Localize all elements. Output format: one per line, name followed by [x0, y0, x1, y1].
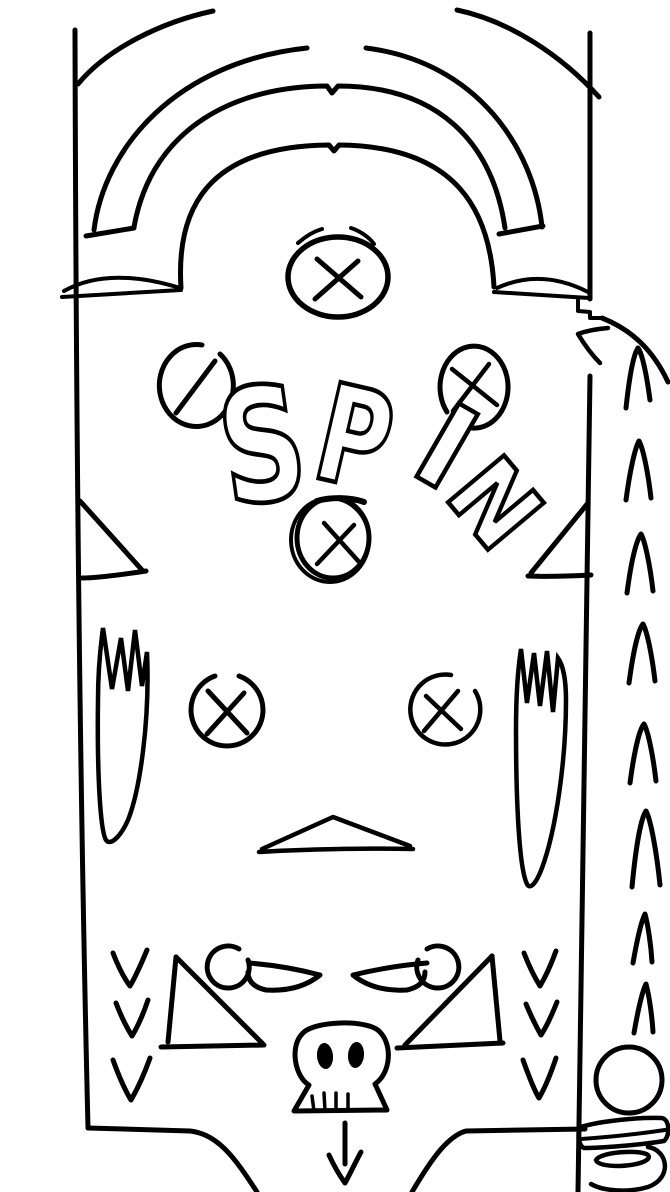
up-chevron-icon — [632, 811, 660, 887]
left-drain-wall — [88, 1128, 257, 1192]
bumper-x-icon — [207, 691, 247, 734]
up-chevron-icon — [629, 624, 655, 683]
right-wall-lower — [578, 376, 590, 1192]
plunger-handle-top — [596, 1152, 649, 1166]
right-slingshot — [397, 956, 503, 1048]
triangle-hypotenuse — [80, 501, 142, 570]
sketch-svg: S P I N — [0, 0, 670, 1192]
top-x-bumper — [288, 228, 388, 317]
down-chevron-icon — [113, 1058, 150, 1100]
bumper-x-icon — [424, 691, 461, 731]
left-lane-guide-base — [62, 290, 181, 297]
slingshot-side — [492, 956, 500, 1041]
outer-arc-left — [78, 11, 213, 84]
left-claw — [98, 628, 148, 842]
pinball-sketch-canvas: S P I N — [0, 0, 670, 1192]
up-chevron-icon — [634, 984, 653, 1033]
inner-horseshoe-arc — [180, 145, 494, 288]
top-arch — [62, 10, 599, 298]
up-chevron-icon — [630, 724, 656, 783]
drain-arrow — [329, 1123, 361, 1183]
arch-arc3 — [134, 86, 505, 228]
skull-right-eye — [347, 1041, 365, 1068]
spin-title: S P I N — [208, 349, 564, 572]
plunger-assembly — [579, 1047, 669, 1191]
flipper-paddle — [248, 963, 320, 990]
slingshot-base — [397, 1043, 503, 1048]
mid-arrowhead — [259, 817, 413, 852]
arch-arc2-left — [94, 48, 307, 230]
right-lane-guide-base — [494, 292, 589, 298]
outer-arc-right — [457, 10, 599, 97]
up-chevron-icon — [633, 914, 652, 963]
down-chevron-icon — [524, 951, 556, 986]
left-wall-triangle — [80, 501, 146, 578]
lane-entry-arrow-icon — [578, 328, 608, 363]
skull-outline — [294, 1023, 388, 1111]
triangle-base — [528, 575, 591, 576]
down-chevron-icon — [116, 1000, 148, 1036]
up-chevron-icon — [626, 348, 650, 408]
plunger-pad-inner-line — [581, 1130, 665, 1139]
up-chevron-icon — [627, 534, 653, 593]
down-chevron-icon — [526, 1002, 557, 1035]
playfield-walls — [75, 30, 668, 1192]
arch-arc2-right — [366, 48, 542, 227]
skull — [294, 1023, 388, 1111]
triangle-base — [82, 571, 146, 578]
arrowhead-base — [259, 849, 413, 852]
shooter-lane-up-chevrons — [626, 348, 660, 1033]
mid-right-x-bumper — [410, 675, 480, 745]
right-flipper — [353, 946, 459, 990]
arrowhead-peak — [262, 817, 410, 849]
pinball-ball — [596, 1047, 662, 1113]
shooter-lane-notch — [578, 300, 602, 318]
down-chevron-icon — [113, 950, 147, 986]
bumper-circle — [410, 675, 480, 745]
skull-left-eye — [316, 1042, 334, 1069]
bumper-x-icon — [317, 523, 360, 564]
slingshot-base — [161, 1045, 264, 1047]
up-chevron-icon — [626, 441, 651, 500]
left-lane-guide-curve — [64, 278, 180, 291]
slingshot-side — [168, 957, 176, 1042]
down-chevron-icon — [523, 1058, 556, 1098]
right-outlane-down-chevrons — [523, 951, 557, 1098]
mid-left-x-bumper — [191, 676, 263, 746]
right-drain-wall — [412, 1129, 585, 1192]
left-flipper — [207, 946, 320, 990]
right-claw — [516, 649, 566, 886]
bumper-x-icon — [315, 259, 361, 299]
right-lane-guide-curve — [497, 279, 588, 292]
left-outlane-down-chevrons — [113, 950, 150, 1100]
flipper-pivot-circle — [207, 946, 249, 988]
